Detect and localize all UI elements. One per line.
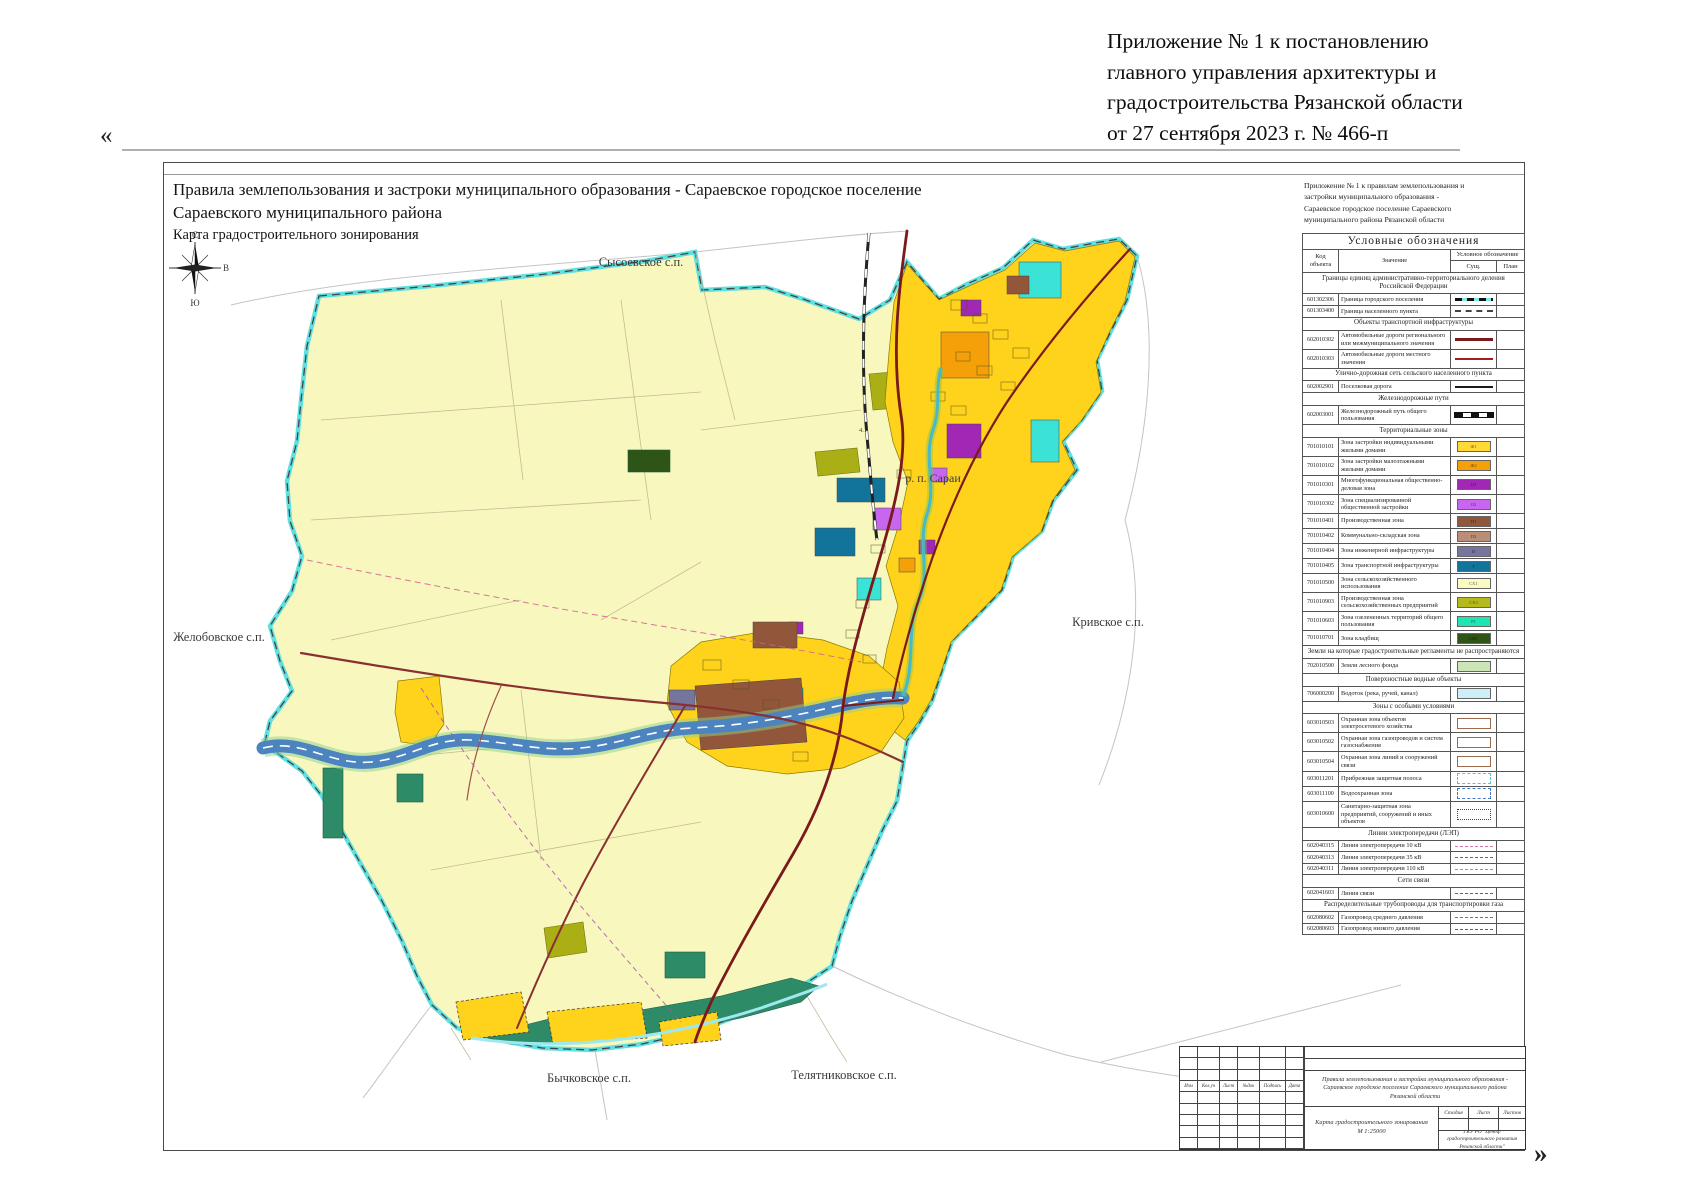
legend-row-code: 602010302 <box>1303 330 1339 349</box>
legend-row-code: 602002901 <box>1303 381 1339 393</box>
legend-row-symbol: О1 <box>1451 475 1497 494</box>
stamp-grid-cell <box>1238 1104 1260 1115</box>
stamp-grid-cell <box>1220 1115 1238 1126</box>
legend-row-name: Зона инженерной инфраструктуры <box>1339 544 1451 559</box>
stamp-grid-cell <box>1238 1047 1260 1058</box>
legend-row-symbol <box>1451 659 1497 674</box>
legend-row: 701010701Зона кладбищСН1 <box>1303 631 1525 646</box>
legend-row-plan <box>1497 752 1525 771</box>
compass-w: З <box>164 263 165 273</box>
title-block-revision-grid: ИзмКол.учЛист№докПодписьДата <box>1180 1047 1304 1149</box>
stamp-grid-cell: Дата <box>1286 1081 1304 1092</box>
area-symbol-icon <box>1457 737 1491 748</box>
legend-row-name: Линия электропередачи 10 кВ <box>1339 840 1451 852</box>
zone-swatch-icon: П1 <box>1457 516 1491 527</box>
legend-row: 602040315Линия электропередачи 10 кВ <box>1303 840 1525 852</box>
title-block: ИзмКол.учЛист№докПодписьДата Правила зем… <box>1179 1046 1526 1150</box>
legend-row-plan <box>1497 544 1525 559</box>
legend-row-name: Производственная зона <box>1339 514 1451 529</box>
stamp-grid-cell <box>1220 1058 1238 1069</box>
legend-row-symbol <box>1451 888 1497 900</box>
stamp-grid-cell: Подпись <box>1260 1081 1286 1092</box>
legend-section-header: Сети связи <box>1303 875 1525 888</box>
legend-row-name: Зона специализированной общественной зас… <box>1339 495 1451 514</box>
legend-row-plan <box>1497 912 1525 924</box>
map-sheet-frame: С Ю З В Сысоевское с.п. Желобовское с.п.… <box>163 162 1525 1151</box>
zone-swatch-icon: О2 <box>1457 499 1491 510</box>
stamp-document-title: Карта градостроительного зонирования <box>1315 1119 1428 1128</box>
legend-row-code: 601303400 <box>1303 305 1339 317</box>
legend-row-code: 603010504 <box>1303 752 1339 771</box>
legend-row-symbol: П1 <box>1451 514 1497 529</box>
stamp-document-name: Карта градостроительного зонирования М 1… <box>1305 1107 1439 1149</box>
legend-row-symbol <box>1451 349 1497 368</box>
legend-row-symbol: И <box>1451 544 1497 559</box>
legend-row-code: 701010402 <box>1303 529 1339 544</box>
stamp-empty-row <box>1305 1059 1525 1071</box>
legend-section-header: Территориальные зоны <box>1303 425 1525 438</box>
line-symbol-icon <box>1455 338 1493 341</box>
header-note-line: от 27 сентября 2023 г. № 466-п <box>1107 118 1547 149</box>
legend-row-name: Охранная зона объектов электросетевого х… <box>1339 714 1451 733</box>
area-symbol-icon <box>1457 718 1491 729</box>
stamp-grid-cell <box>1286 1047 1304 1058</box>
stamp-grid-cell: Лист <box>1220 1081 1238 1092</box>
legend-row: 701010404Зона инженерной инфраструктурыИ <box>1303 544 1525 559</box>
open-quote-mark: « <box>100 122 113 150</box>
line-symbol-icon <box>1455 298 1493 301</box>
legend-row: 602002901Поселковая дорога <box>1303 381 1525 393</box>
legend-row-code: 701010500 <box>1303 574 1339 593</box>
stamp-grid-cell <box>1260 1104 1286 1115</box>
legend-row-code: 701010405 <box>1303 559 1339 574</box>
legend-section-header: Границы единиц административно-территори… <box>1303 273 1525 294</box>
legend-row-code: 602080602 <box>1303 912 1339 924</box>
legend-col-code: Код объекта <box>1303 249 1339 273</box>
legend-row-plan <box>1497 923 1525 935</box>
stamp-grid-cell <box>1198 1104 1220 1115</box>
sheet-title-line3: Карта градостроительного зонирования <box>173 225 922 245</box>
legend-row-code: 602010303 <box>1303 349 1339 368</box>
legend-row-name: Водоток (река, ручей, канал) <box>1339 686 1451 701</box>
legend-row-plan <box>1497 659 1525 674</box>
legend-row-code: 602040315 <box>1303 840 1339 852</box>
legend-section-header: Поверхностные водные объекты <box>1303 674 1525 687</box>
stamp-grid-cell <box>1180 1092 1198 1103</box>
legend-section-header: Земли на которые градостроительные регла… <box>1303 646 1525 659</box>
line-symbol-icon <box>1455 869 1493 870</box>
legend-panel: Приложение № 1 к правилам землепользован… <box>1302 178 1524 935</box>
legend-row-symbol <box>1451 752 1497 771</box>
legend-row-code: 602041603 <box>1303 888 1339 900</box>
legend-row: 701010903Производственная зона сельскохо… <box>1303 593 1525 612</box>
stamp-grid-cell <box>1198 1058 1220 1069</box>
label-parcel: 4.1 <box>859 427 867 434</box>
legend-row-symbol <box>1451 294 1497 306</box>
legend-row-plan <box>1497 801 1525 828</box>
legend-section-header: Железнодорожные пути <box>1303 393 1525 406</box>
legend-row: 603010502Охранная зона газопроводов и си… <box>1303 733 1525 752</box>
stamp-grid-cell <box>1286 1126 1304 1137</box>
legend-row: 603010504Охранная зона линий и сооружени… <box>1303 752 1525 771</box>
legend-row-plan <box>1497 888 1525 900</box>
legend-row-name: Газопровод среднего давления <box>1339 912 1451 924</box>
stamp-grid-cell <box>1220 1070 1238 1081</box>
stamp-grid-cell: Кол.уч <box>1198 1081 1220 1092</box>
stamp-grid-cell <box>1260 1070 1286 1081</box>
legend-section-header: Распределительные трубопроводы для транс… <box>1303 899 1525 912</box>
legend-row: 701010302Зона специализированной обществ… <box>1303 495 1525 514</box>
stamp-grid-cell <box>1238 1138 1260 1149</box>
legend-row-code: 601302306 <box>1303 294 1339 306</box>
legend-row: 603011100Водоохранная зона <box>1303 786 1525 801</box>
legend-row-code: 702010500 <box>1303 659 1339 674</box>
legend-row: 601302306Граница городского поселения <box>1303 294 1525 306</box>
legend-row-code: 602040311 <box>1303 863 1339 875</box>
stamp-grid-cell <box>1180 1058 1198 1069</box>
label-town: р. п. Сараи <box>905 471 961 485</box>
area-symbol-icon <box>1457 809 1491 820</box>
area-symbol-icon <box>1457 788 1491 799</box>
legend-row: 706000200Водоток (река, ручей, канал) <box>1303 686 1525 701</box>
stamp-grid-cell: №док <box>1238 1081 1260 1092</box>
legend-row-plan <box>1497 574 1525 593</box>
legend-row-code: 603011201 <box>1303 771 1339 786</box>
legend-row: 602080602Газопровод среднего давления <box>1303 912 1525 924</box>
legend-row-plan <box>1497 475 1525 494</box>
stamp-grid-cell <box>1198 1126 1220 1137</box>
legend-row-name: Линия электропередачи 110 кВ <box>1339 863 1451 875</box>
legend-row-symbol <box>1451 863 1497 875</box>
stamp-organization: ГКУ РО "Центр градостроительного развити… <box>1439 1131 1525 1149</box>
legend-table: Условные обозначения Код объекта Значени… <box>1302 233 1525 936</box>
stamp-grid-cell: Изм <box>1180 1081 1198 1092</box>
legend-row-symbol: Р1 <box>1451 612 1497 631</box>
legend-row-plan <box>1497 406 1525 425</box>
legend-note: Приложение № 1 к правилам землепользован… <box>1304 180 1466 226</box>
legend-row-code: 603011100 <box>1303 786 1339 801</box>
legend-row-symbol <box>1451 786 1497 801</box>
legend-col-symbol: Условное обозначение <box>1451 249 1525 261</box>
legend-row-plan <box>1497 305 1525 317</box>
zone-swatch-icon: П2 <box>1457 531 1491 542</box>
legend-row-code: 701010903 <box>1303 593 1339 612</box>
stamp-grid-cell <box>1260 1092 1286 1103</box>
title-block-main: Правила землепользования и застройки мун… <box>1304 1047 1525 1149</box>
stamp-grid-cell <box>1238 1126 1260 1137</box>
legend-row-symbol: О2 <box>1451 495 1497 514</box>
stamp-grid-cell <box>1220 1047 1238 1058</box>
legend-section-header: Улично-дорожная сеть сельского населенно… <box>1303 368 1525 381</box>
legend-col-meaning: Значение <box>1339 249 1451 273</box>
legend-row: 601303400Граница населенного пункта <box>1303 305 1525 317</box>
legend-row: 702010500Земли лесного фонда <box>1303 659 1525 674</box>
legend-row-code: 701010102 <box>1303 456 1339 475</box>
zone-swatch-icon: Ж1 <box>1457 441 1491 452</box>
legend-row-plan <box>1497 529 1525 544</box>
legend-row-plan <box>1497 514 1525 529</box>
label-east-settlement: Кривское с.п. <box>1072 615 1144 629</box>
legend-row: 602010302Автомобильные дороги региональн… <box>1303 330 1525 349</box>
legend-row-code: 602003001 <box>1303 406 1339 425</box>
legend-row-name: Железнодорожный путь общего пользования <box>1339 406 1451 425</box>
legend-row-plan <box>1497 593 1525 612</box>
stamp-grid-cell <box>1286 1092 1304 1103</box>
legend-row: 602010303Автомобильные дороги местного з… <box>1303 349 1525 368</box>
legend-row-plan <box>1497 771 1525 786</box>
legend-row-symbol <box>1451 852 1497 864</box>
legend-row-symbol <box>1451 801 1497 828</box>
legend-row-plan <box>1497 840 1525 852</box>
stamp-grid-cell <box>1180 1138 1198 1149</box>
legend-row-code: 701010701 <box>1303 631 1339 646</box>
legend-row: 701010401Производственная зонаП1 <box>1303 514 1525 529</box>
stamp-grid-cell <box>1286 1070 1304 1081</box>
zone-swatch-icon: СН1 <box>1457 633 1491 644</box>
legend-row-code: 701010404 <box>1303 544 1339 559</box>
legend-row-name: Зона транспортной инфраструктуры <box>1339 559 1451 574</box>
stamp-grid-cell <box>1260 1058 1286 1069</box>
legend-row-plan <box>1497 686 1525 701</box>
legend-row-plan <box>1497 495 1525 514</box>
stamp-grid-cell <box>1286 1138 1304 1149</box>
legend-col-plan: План <box>1497 261 1525 273</box>
stamp-sheets-header: Листов <box>1499 1107 1525 1119</box>
legend-row-plan <box>1497 612 1525 631</box>
legend-row-name: Граница населенного пункта <box>1339 305 1451 317</box>
stamp-grid-cell <box>1220 1104 1238 1115</box>
legend-section-header: Объекты транспортной инфраструктуры <box>1303 317 1525 330</box>
label-south-settlement-2: Телятниковское с.п. <box>791 1068 897 1082</box>
line-symbol-icon <box>1455 310 1493 312</box>
legend-row-symbol: СН1 <box>1451 631 1497 646</box>
header-note: Приложение № 1 к постановлению главного … <box>1107 26 1547 148</box>
legend-row-symbol <box>1451 406 1497 425</box>
stamp-sheets-value <box>1499 1119 1525 1131</box>
legend-row-code: 701010603 <box>1303 612 1339 631</box>
legend-row-symbol: СХ3 <box>1451 593 1497 612</box>
legend-row-plan <box>1497 733 1525 752</box>
legend-row-name: Земли лесного фонда <box>1339 659 1451 674</box>
stamp-grid-cell <box>1220 1092 1238 1103</box>
legend-row: 701010301Многофункциональная общественно… <box>1303 475 1525 494</box>
legend-row-name: Охранная зона линий и сооружений связи <box>1339 752 1451 771</box>
legend-row-symbol <box>1451 330 1497 349</box>
legend-row-code: 706000200 <box>1303 686 1339 701</box>
legend-row-symbol <box>1451 771 1497 786</box>
stamp-grid-cell <box>1286 1104 1304 1115</box>
legend-row-code: 603010503 <box>1303 714 1339 733</box>
legend-row-name: Линия связи <box>1339 888 1451 900</box>
sheet-title: Правила землепользования и застроки муни… <box>173 179 922 245</box>
legend-row-name: Производственная зона сельскохозяйственн… <box>1339 593 1451 612</box>
legend-row-plan <box>1497 863 1525 875</box>
legend-row-code: 701010301 <box>1303 475 1339 494</box>
legend-row-plan <box>1497 437 1525 456</box>
stamp-grid-cell <box>1180 1070 1198 1081</box>
legend-row-symbol <box>1451 912 1497 924</box>
area-symbol-icon <box>1457 773 1491 784</box>
legend-row-plan <box>1497 786 1525 801</box>
legend-row-plan <box>1497 349 1525 368</box>
stamp-grid-cell <box>1220 1138 1238 1149</box>
close-quote-mark: » <box>1534 1138 1548 1169</box>
legend-row: 602040311Линия электропередачи 110 кВ <box>1303 863 1525 875</box>
legend-row-name: Водоохранная зона <box>1339 786 1451 801</box>
legend-row-symbol: Ж2 <box>1451 456 1497 475</box>
legend-row-name: Многофункциональная общественно-деловая … <box>1339 475 1451 494</box>
legend-row: 602003001Железнодорожный путь общего пол… <box>1303 406 1525 425</box>
zone-swatch-icon: СХ3 <box>1457 597 1491 608</box>
legend-row-code: 701010302 <box>1303 495 1339 514</box>
zone-swatch-icon: Т <box>1457 561 1491 572</box>
stamp-grid-cell <box>1198 1115 1220 1126</box>
legend-row-plan <box>1497 330 1525 349</box>
stamp-grid-cell <box>1238 1070 1260 1081</box>
legend-row: 603010503Охранная зона объектов электрос… <box>1303 714 1525 733</box>
stamp-grid-cell <box>1260 1138 1286 1149</box>
legend-row-name: Зона застройки малоэтажными жилыми домам… <box>1339 456 1451 475</box>
stamp-grid-cell <box>1198 1138 1220 1149</box>
stamp-sheet-value <box>1469 1119 1499 1131</box>
legend-row: 701010102Зона застройки малоэтажными жил… <box>1303 456 1525 475</box>
legend-row-plan <box>1497 381 1525 393</box>
legend-row-symbol: Т <box>1451 559 1497 574</box>
stamp-grid-cell <box>1260 1115 1286 1126</box>
stamp-grid-cell <box>1180 1126 1198 1137</box>
legend-row-name: Зона озелененных территорий общего польз… <box>1339 612 1451 631</box>
legend-row-code: 701010101 <box>1303 437 1339 456</box>
legend-row-code: 603010600 <box>1303 801 1339 828</box>
legend-row-plan <box>1497 456 1525 475</box>
legend-row-name: Автомобильные дороги местного значения <box>1339 349 1451 368</box>
legend-row-symbol: П2 <box>1451 529 1497 544</box>
stamp-empty-row <box>1305 1047 1525 1059</box>
line-symbol-icon <box>1455 857 1493 858</box>
legend-row-symbol: СХ1 <box>1451 574 1497 593</box>
stamp-grid-cell <box>1238 1058 1260 1069</box>
legend-row-name: Зона сельскохозяйственного использования <box>1339 574 1451 593</box>
legend-row: 603011201Прибрежная защитная полоса <box>1303 771 1525 786</box>
stamp-grid-cell <box>1286 1115 1304 1126</box>
stamp-stage-value <box>1439 1119 1469 1131</box>
label-north-settlement: Сысоевское с.п. <box>599 255 684 269</box>
area-symbol-icon <box>1457 756 1491 767</box>
legend-row-name: Прибрежная защитная полоса <box>1339 771 1451 786</box>
stamp-grid-cell <box>1238 1092 1260 1103</box>
line-symbol-icon <box>1455 893 1493 894</box>
legend-row-code: 603010502 <box>1303 733 1339 752</box>
legend-row-plan <box>1497 294 1525 306</box>
stamp-grid-cell <box>1220 1126 1238 1137</box>
legend-section-header: Зоны с особыми условиями <box>1303 701 1525 714</box>
stamp-grid-cell <box>1198 1070 1220 1081</box>
stamp-grid-cell <box>1180 1047 1198 1058</box>
zone-swatch-icon: О1 <box>1457 479 1491 490</box>
header-note-line: градостроительства Рязанской области <box>1107 87 1547 118</box>
legend-row-name: Коммунально-складская зона <box>1339 529 1451 544</box>
legend-row-symbol <box>1451 686 1497 701</box>
zone-swatch-icon <box>1457 661 1491 672</box>
legend-row-plan <box>1497 852 1525 864</box>
sheet-title-line1: Правила землепользования и застроки муни… <box>173 179 922 202</box>
zone-swatch-icon: Р1 <box>1457 616 1491 627</box>
legend-row: 603010600Санитарно-защитная зона предпри… <box>1303 801 1525 828</box>
line-symbol-icon <box>1455 929 1493 930</box>
line-symbol-icon <box>1455 917 1493 918</box>
sheet-title-line2: Сараевского муниципального района <box>173 202 922 225</box>
legend-row-symbol <box>1451 923 1497 935</box>
zone-swatch-icon: СХ1 <box>1457 578 1491 589</box>
label-west-settlement: Желобовское с.п. <box>173 630 265 644</box>
legend-row: 701010500Зона сельскохозяйственного испо… <box>1303 574 1525 593</box>
legend-row-plan <box>1497 714 1525 733</box>
legend-row-symbol <box>1451 305 1497 317</box>
legend-row-name: Санитарно-защитная зона предприятий, соо… <box>1339 801 1451 828</box>
stamp-stage-header: Стадия <box>1439 1107 1469 1119</box>
stamp-grid-cell <box>1180 1104 1198 1115</box>
legend-row-symbol <box>1451 381 1497 393</box>
top-rule-line <box>122 149 1460 151</box>
legend-row-symbol: Ж1 <box>1451 437 1497 456</box>
legend-row-code: 602040313 <box>1303 852 1339 864</box>
stamp-grid-cell <box>1198 1047 1220 1058</box>
legend-row-name: Автомобильные дороги регионального или м… <box>1339 330 1451 349</box>
legend-row: 701010101Зона застройки индивидуальными … <box>1303 437 1525 456</box>
stamp-grid-cell <box>1260 1047 1286 1058</box>
legend-row-symbol <box>1451 733 1497 752</box>
compass-e: В <box>223 263 229 273</box>
zone-swatch-icon <box>1457 688 1491 699</box>
legend-row: 701010402Коммунально-складская зонаП2 <box>1303 529 1525 544</box>
legend-row-name: Зона застройки индивидуальными жилыми до… <box>1339 437 1451 456</box>
stamp-grid-cell <box>1238 1115 1260 1126</box>
legend-row-plan <box>1497 559 1525 574</box>
legend-row-name: Поселковая дорога <box>1339 381 1451 393</box>
stamp-document-scale: М 1:25000 <box>1357 1128 1385 1137</box>
legend-row: 602041603Линия связи <box>1303 888 1525 900</box>
stamp-sheet-header: Лист <box>1469 1107 1499 1119</box>
zone-swatch-icon: И <box>1457 546 1491 557</box>
legend-row-plan <box>1497 631 1525 646</box>
header-note-line: главного управления архитектуры и <box>1107 57 1547 88</box>
legend-row-symbol <box>1451 714 1497 733</box>
legend-row-name: Газопровод низкого давления <box>1339 923 1451 935</box>
stamp-grid-cell <box>1198 1092 1220 1103</box>
compass-s: Ю <box>190 298 199 308</box>
legend-row-name: Зона кладбищ <box>1339 631 1451 646</box>
stamp-grid-cell <box>1180 1115 1198 1126</box>
header-note-line: Приложение № 1 к постановлению <box>1107 26 1547 57</box>
legend-title: Условные обозначения <box>1303 233 1525 249</box>
legend-row: 602080603Газопровод низкого давления <box>1303 923 1525 935</box>
scanned-zoning-map-page: { "page": { "open_quote": "«", "close_qu… <box>0 0 1698 1200</box>
legend-row: 701010405Зона транспортной инфраструктур… <box>1303 559 1525 574</box>
zone-swatch-icon: Ж2 <box>1457 460 1491 471</box>
legend-table-body: Границы единиц административно-территори… <box>1303 273 1525 935</box>
legend-col-exist: Сущ. <box>1451 261 1497 273</box>
label-south-settlement-1: Бычковское с.п. <box>547 1071 631 1085</box>
line-symbol-icon <box>1455 846 1493 847</box>
legend-row-symbol <box>1451 840 1497 852</box>
stamp-project-name: Правила землепользования и застройки мун… <box>1305 1071 1525 1107</box>
stamp-grid-cell <box>1286 1058 1304 1069</box>
legend-row-name: Линия электропередачи 35 кВ <box>1339 852 1451 864</box>
line-symbol-icon <box>1455 386 1493 388</box>
legend-row-name: Охранная зона газопроводов и систем газо… <box>1339 733 1451 752</box>
line-symbol-icon <box>1455 358 1493 360</box>
legend-row-code: 701010401 <box>1303 514 1339 529</box>
